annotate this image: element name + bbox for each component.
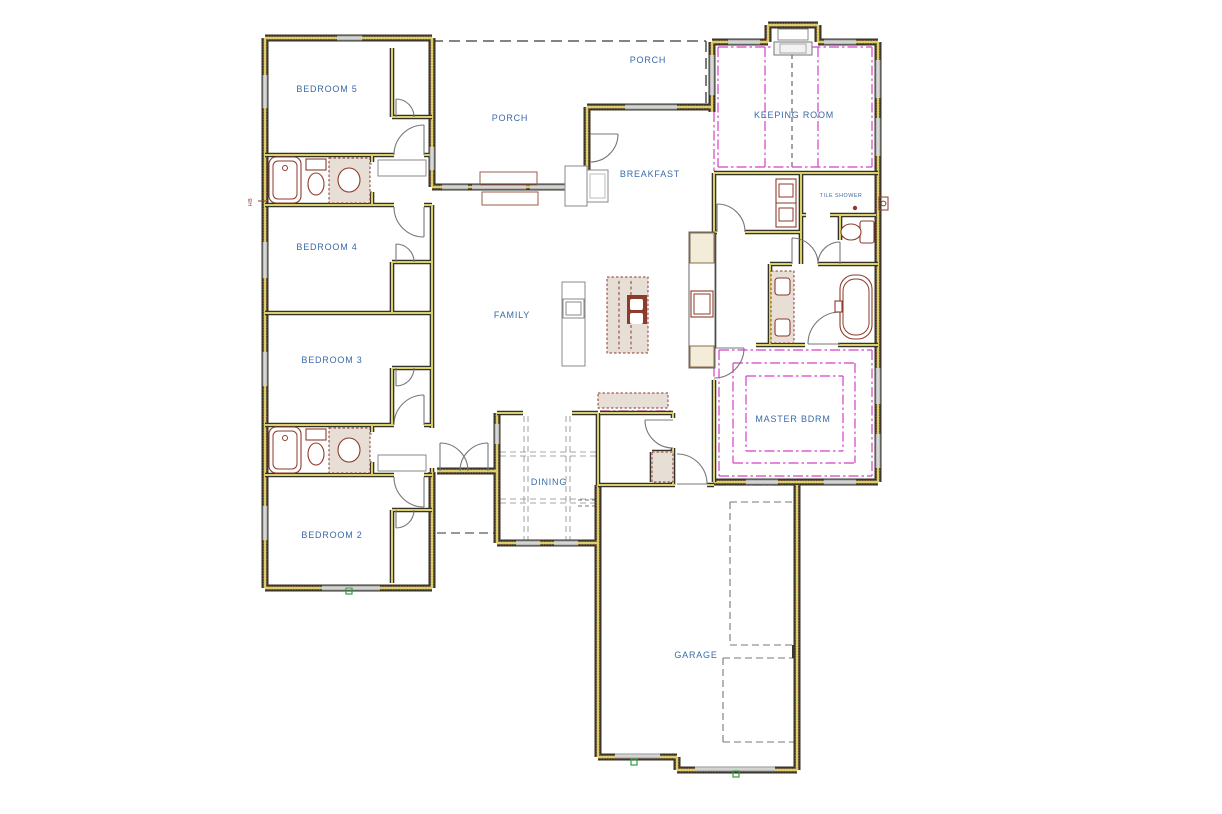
- kitchen-west-counter: [562, 282, 585, 366]
- label-porch-top: PORCH: [630, 55, 667, 65]
- shower-head: [853, 206, 857, 210]
- label-family: FAMILY: [494, 310, 530, 320]
- toilet-bowl: [308, 173, 324, 195]
- toilet-bowl: [841, 224, 861, 240]
- label-tile-shower: TILE SHOWER: [820, 193, 863, 199]
- vanity-sink: [775, 319, 790, 336]
- toilet-bowl: [308, 443, 324, 465]
- vanity-sink: [338, 438, 360, 462]
- linen-shelf: [378, 160, 426, 176]
- hall-bath-1-fixtures: [269, 157, 426, 203]
- cabinet: [690, 346, 714, 367]
- toilet-tank: [306, 159, 326, 170]
- laundry-appliances: [776, 179, 796, 227]
- label-garage: GARAGE: [674, 650, 717, 660]
- label-bedroom3: BEDROOM 3: [301, 355, 362, 365]
- label-master-bdrm: MASTER BDRM: [755, 414, 830, 424]
- toilet-tank: [306, 429, 326, 440]
- label-porch-left: PORCH: [492, 113, 529, 123]
- garage-storage-dashed-outline: [723, 502, 800, 742]
- room-labels: PORCH PORCH KEEPING ROOM BREAKFAST BEDRO…: [248, 55, 862, 660]
- sink-basin: [630, 299, 643, 310]
- label-bedroom4: BEDROOM 4: [296, 242, 357, 252]
- cabinet: [690, 233, 714, 263]
- linen-shelf: [378, 455, 426, 471]
- kitchen-island: [607, 277, 648, 353]
- buffet-counter: [598, 393, 668, 408]
- tub-faucet: [835, 301, 842, 312]
- floor-plan-page: PORCH PORCH KEEPING ROOM BREAKFAST BEDRO…: [0, 0, 1222, 814]
- label-keeping-room: KEEPING ROOM: [754, 110, 834, 120]
- sink-basin: [630, 313, 643, 324]
- mud-closet: [652, 452, 673, 482]
- label-bedroom2: BEDROOM 2: [301, 530, 362, 540]
- fireplace: [774, 29, 812, 55]
- vanity-sink: [775, 278, 790, 295]
- label-dining: DINING: [531, 477, 567, 487]
- exterior-walls: [265, 25, 878, 770]
- breakfast-built-in: [565, 166, 608, 206]
- hall-bath-2-fixtures: [269, 427, 426, 473]
- kitchen-east-counter: [689, 232, 715, 368]
- toilet-tank: [860, 221, 874, 243]
- label-bedroom5: BEDROOM 5: [296, 84, 357, 94]
- label-hose-bib: HB: [248, 198, 254, 207]
- label-breakfast: BREAKFAST: [620, 169, 680, 179]
- garage-door-openings: [615, 756, 775, 769]
- floor-plan-drawing: PORCH PORCH KEEPING ROOM BREAKFAST BEDRO…: [0, 0, 1222, 814]
- vanity-sink: [338, 168, 360, 192]
